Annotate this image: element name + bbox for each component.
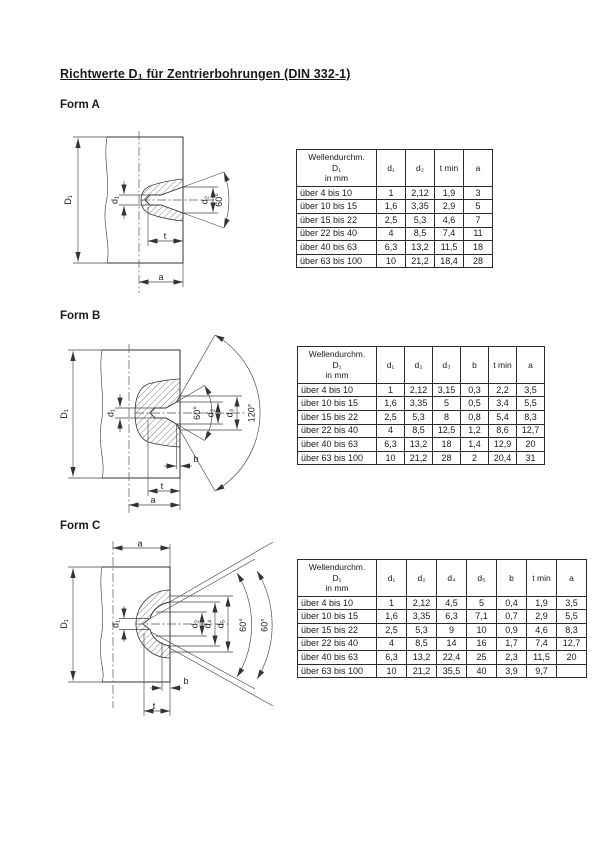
table-cell-value: 12,7 bbox=[517, 424, 545, 438]
table-cell-value: 16 bbox=[467, 637, 497, 651]
table-cell-value: 28 bbox=[464, 254, 493, 268]
table-cell-value: 40 bbox=[467, 664, 497, 678]
table-row: über 15 bis 222,55,39100,94,68,3 bbox=[298, 624, 587, 638]
dim-label-angle-60: 60° bbox=[214, 193, 224, 207]
table-header-row: Wellendurchm. D₁ in mmd₁d₂t mina bbox=[297, 150, 493, 187]
table-cell-value: 0,5 bbox=[461, 397, 489, 411]
table-cell-value: 6,3 bbox=[377, 438, 405, 452]
table-cell-range: über 10 bis 15 bbox=[297, 200, 377, 214]
table-cell-range: über 63 bis 100 bbox=[298, 664, 377, 678]
table-header-cell: d₁ bbox=[377, 150, 406, 187]
table-cell-value: 7,1 bbox=[467, 610, 497, 624]
table-header-cell: d₅ bbox=[467, 560, 497, 597]
table-row: über 10 bis 151,63,3550,53,45,5 bbox=[298, 397, 545, 411]
page-title: Richtwerte D₁ für Zentrierbohrungen (DIN… bbox=[60, 67, 350, 81]
table-header-shaft-diameter: Wellendurchm. D₁ in mm bbox=[298, 347, 377, 384]
dim-label-angle-60-inner: 60° bbox=[238, 618, 248, 632]
table-cell-value: 8 bbox=[433, 411, 461, 425]
table-header-cell: b bbox=[461, 347, 489, 384]
form-c-table-head: Wellendurchm. D₁ in mmd₁d₂d₄d₅bt mina bbox=[298, 560, 587, 597]
document-page: Richtwerte D₁ für Zentrierbohrungen (DIN… bbox=[0, 0, 600, 850]
form-b-table: Wellendurchm. D₁ in mmd₁d₂d₃bt mina über… bbox=[297, 346, 545, 465]
table-row: über 22 bis 4048,514161,77,412,7 bbox=[298, 637, 587, 651]
table-row: über 4 bis 1012,124,550,41,93,5 bbox=[298, 596, 587, 610]
table-cell-value: 1 bbox=[377, 186, 406, 200]
table-cell-value: 4,5 bbox=[437, 596, 467, 610]
table-row: über 22 bis 4048,512,51,28,612,7 bbox=[298, 424, 545, 438]
table-cell-value: 9 bbox=[437, 624, 467, 638]
dim-label-a: a bbox=[137, 539, 142, 549]
table-cell-value: 1,9 bbox=[527, 596, 557, 610]
table-cell-range: über 22 bis 40 bbox=[298, 637, 377, 651]
table-cell-value: 8,3 bbox=[557, 624, 587, 638]
table-cell-value: 1,4 bbox=[461, 438, 489, 452]
table-cell-range: über 15 bis 22 bbox=[298, 624, 377, 638]
table-cell-value: 2,5 bbox=[377, 624, 407, 638]
table-row: über 40 bis 636,313,211,518 bbox=[297, 241, 493, 255]
table-cell-value: 4 bbox=[377, 637, 407, 651]
shaft-break-line bbox=[100, 350, 103, 478]
table-cell-value: 12,9 bbox=[489, 438, 517, 452]
table-row: über 4 bis 1012,123,150,32,23,5 bbox=[298, 383, 545, 397]
table-cell-value: 2,2 bbox=[489, 383, 517, 397]
table-cell-value: 0,8 bbox=[461, 411, 489, 425]
table-row: über 22 bis 4048,57,411 bbox=[297, 227, 493, 241]
table-cell-value: 2,5 bbox=[377, 411, 405, 425]
table-cell-value: 0,7 bbox=[497, 610, 527, 624]
table-cell-value: 11,5 bbox=[435, 241, 464, 255]
table-cell-value: 20,4 bbox=[489, 451, 517, 465]
table-header-cell: d₂ bbox=[405, 347, 433, 384]
table-cell-value: 6,3 bbox=[437, 610, 467, 624]
form-c-table-body: über 4 bis 1012,124,550,41,93,5über 10 b… bbox=[298, 596, 587, 678]
table-header-shaft-diameter: Wellendurchm. D₁ in mm bbox=[298, 560, 377, 597]
form-b-heading: Form B bbox=[60, 310, 100, 322]
table-cell-value: 13,2 bbox=[407, 651, 437, 665]
dim-label-b: b bbox=[193, 454, 198, 464]
table-cell-value: 2,12 bbox=[405, 383, 433, 397]
table-cell-value: 2,12 bbox=[407, 596, 437, 610]
table-cell-value: 22,4 bbox=[437, 651, 467, 665]
table-cell-value: 2,5 bbox=[377, 214, 406, 228]
table-cell-value: 4 bbox=[377, 227, 406, 241]
form-b-drawing: D₁ d₁ 60° 120° d₂ d₃ b t a bbox=[55, 328, 305, 524]
table-row: über 63 bis 1001021,228220,431 bbox=[298, 451, 545, 465]
form-a-heading: Form A bbox=[60, 99, 100, 111]
table-cell-value: 5 bbox=[433, 397, 461, 411]
table-header-cell: d₂ bbox=[407, 560, 437, 597]
dim-label-angle-120: 120° bbox=[247, 403, 257, 422]
table-row: über 15 bis 222,55,380,85,48,3 bbox=[298, 411, 545, 425]
dim-label-b: b bbox=[183, 676, 188, 686]
table-header-cell: b bbox=[497, 560, 527, 597]
table-cell-value: 2,12 bbox=[406, 186, 435, 200]
table-row: über 40 bis 636,313,222,4252,311,520 bbox=[298, 651, 587, 665]
table-cell-range: über 4 bis 10 bbox=[298, 383, 377, 397]
dim-label-angle-60-outer: 60° bbox=[260, 618, 270, 632]
table-header-cell: a bbox=[464, 150, 493, 187]
table-header-cell: d₃ bbox=[433, 347, 461, 384]
shaft-break-line bbox=[100, 567, 103, 682]
dim-label-t: t bbox=[161, 481, 164, 491]
table-cell-value: 1 bbox=[377, 383, 405, 397]
table-cell-value: 18 bbox=[433, 438, 461, 452]
table-cell-value: 13,2 bbox=[406, 241, 435, 255]
table-cell-value: 20 bbox=[557, 651, 587, 665]
table-cell-value: 5,4 bbox=[489, 411, 517, 425]
table-cell-range: über 10 bis 15 bbox=[298, 610, 377, 624]
table-cell-value: 0,4 bbox=[497, 596, 527, 610]
table-header-cell: t min bbox=[527, 560, 557, 597]
form-a-table: Wellendurchm. D₁ in mmd₁d₂t mina über 4 … bbox=[296, 149, 493, 268]
table-cell-value bbox=[557, 664, 587, 678]
table-cell-value: 31 bbox=[517, 451, 545, 465]
table-cell-value: 2,3 bbox=[497, 651, 527, 665]
table-header-cell: d₁ bbox=[377, 347, 405, 384]
table-cell-value: 3,35 bbox=[406, 200, 435, 214]
table-header-cell: d₂ bbox=[406, 150, 435, 187]
table-header-cell: t min bbox=[435, 150, 464, 187]
table-header-row: Wellendurchm. D₁ in mmd₁d₂d₄d₅bt mina bbox=[298, 560, 587, 597]
table-row: über 4 bis 1012,121,93 bbox=[297, 186, 493, 200]
table-cell-value: 20 bbox=[517, 438, 545, 452]
table-cell-value: 21,2 bbox=[406, 254, 435, 268]
table-cell-range: über 63 bis 100 bbox=[298, 451, 377, 465]
table-row: über 10 bis 151,63,356,37,10,72,95,5 bbox=[298, 610, 587, 624]
table-cell-value: 21,2 bbox=[405, 451, 433, 465]
dim-label-d4: d₄ bbox=[203, 619, 213, 628]
table-cell-range: über 15 bis 22 bbox=[297, 214, 377, 228]
table-cell-value: 5,3 bbox=[405, 411, 433, 425]
table-cell-range: über 40 bis 63 bbox=[298, 438, 377, 452]
table-header-cell: t min bbox=[489, 347, 517, 384]
table-cell-value: 18,4 bbox=[435, 254, 464, 268]
dim-label-D1: D₁ bbox=[59, 619, 69, 629]
dim-label-a: a bbox=[150, 495, 155, 505]
table-cell-value: 11,5 bbox=[527, 651, 557, 665]
table-cell-value: 5,5 bbox=[557, 610, 587, 624]
table-cell-value: 6,3 bbox=[377, 651, 407, 665]
table-header-cell: d₄ bbox=[437, 560, 467, 597]
table-cell-value: 0,3 bbox=[461, 383, 489, 397]
table-cell-value: 7 bbox=[464, 214, 493, 228]
table-cell-value: 5 bbox=[467, 596, 497, 610]
table-cell-range: über 63 bis 100 bbox=[297, 254, 377, 268]
table-cell-value: 13,2 bbox=[405, 438, 433, 452]
table-cell-value: 4,6 bbox=[435, 214, 464, 228]
table-cell-value: 4 bbox=[377, 424, 405, 438]
table-header-cell: d₁ bbox=[377, 560, 407, 597]
table-cell-range: über 4 bis 10 bbox=[298, 596, 377, 610]
table-cell-value: 8,5 bbox=[407, 637, 437, 651]
table-cell-value: 3,9 bbox=[497, 664, 527, 678]
table-cell-value: 8,5 bbox=[405, 424, 433, 438]
dim-label-t: t bbox=[153, 701, 156, 711]
table-cell-range: über 10 bis 15 bbox=[298, 397, 377, 411]
dim-label-angle-60: 60° bbox=[192, 406, 202, 420]
dim-label-D1: D₁ bbox=[63, 195, 73, 205]
form-a-drawing: D₁ d₁ d₂ 60° t a bbox=[57, 127, 292, 307]
form-c-table: Wellendurchm. D₁ in mmd₁d₂d₄d₅bt mina üb… bbox=[297, 559, 587, 678]
table-cell-range: über 22 bis 40 bbox=[297, 227, 377, 241]
table-cell-value: 1,2 bbox=[461, 424, 489, 438]
table-row: über 63 bis 1001021,218,428 bbox=[297, 254, 493, 268]
table-cell-value: 21,2 bbox=[407, 664, 437, 678]
table-cell-value: 3,5 bbox=[557, 596, 587, 610]
table-cell-value: 5,5 bbox=[517, 397, 545, 411]
table-cell-value: 35,5 bbox=[437, 664, 467, 678]
form-a-table-head: Wellendurchm. D₁ in mmd₁d₂t mina bbox=[297, 150, 493, 187]
table-cell-value: 25 bbox=[467, 651, 497, 665]
table-cell-range: über 15 bis 22 bbox=[298, 411, 377, 425]
dim-label-d1: d₁ bbox=[111, 620, 121, 628]
table-cell-value: 1,6 bbox=[377, 610, 407, 624]
table-cell-value: 3,5 bbox=[517, 383, 545, 397]
form-b-table-head: Wellendurchm. D₁ in mmd₁d₂d₃bt mina bbox=[298, 347, 545, 384]
table-cell-value: 3 bbox=[464, 186, 493, 200]
table-cell-value: 14 bbox=[437, 637, 467, 651]
table-cell-value: 10 bbox=[377, 664, 407, 678]
dim-label-d3: d₃ bbox=[225, 408, 235, 417]
table-cell-value: 1,6 bbox=[377, 200, 406, 214]
table-cell-range: über 40 bis 63 bbox=[298, 651, 377, 665]
table-cell-value: 2 bbox=[461, 451, 489, 465]
table-header-cell: a bbox=[517, 347, 545, 384]
table-cell-value: 8,5 bbox=[406, 227, 435, 241]
dim-label-d2: d₂ bbox=[200, 195, 210, 204]
table-cell-value: 3,35 bbox=[407, 610, 437, 624]
table-cell-value: 10 bbox=[467, 624, 497, 638]
table-cell-value: 1,7 bbox=[497, 637, 527, 651]
dim-label-d2: d₂ bbox=[190, 619, 200, 628]
table-cell-value: 1,9 bbox=[435, 186, 464, 200]
table-header-row: Wellendurchm. D₁ in mmd₁d₂d₃bt mina bbox=[298, 347, 545, 384]
table-cell-value: 4,6 bbox=[527, 624, 557, 638]
dim-label-t: t bbox=[164, 231, 167, 241]
table-cell-value: 28 bbox=[433, 451, 461, 465]
table-cell-value: 3,15 bbox=[433, 383, 461, 397]
table-row: über 15 bis 222,55,34,67 bbox=[297, 214, 493, 228]
table-cell-value: 1 bbox=[377, 596, 407, 610]
table-cell-range: über 4 bis 10 bbox=[297, 186, 377, 200]
table-cell-value: 3,35 bbox=[405, 397, 433, 411]
table-cell-value: 0,9 bbox=[497, 624, 527, 638]
table-header-shaft-diameter: Wellendurchm. D₁ in mm bbox=[297, 150, 377, 187]
table-cell-value: 7,4 bbox=[435, 227, 464, 241]
dim-label-d1: d₁ bbox=[106, 409, 116, 417]
table-cell-value: 5 bbox=[464, 200, 493, 214]
table-row: über 10 bis 151,63,352,95 bbox=[297, 200, 493, 214]
table-row: über 40 bis 636,313,2181,412,920 bbox=[298, 438, 545, 452]
form-c-drawing: a D₁ d₁ d₂ d₄ d₅ 60° 60° b t bbox=[55, 538, 305, 724]
dim-label-a: a bbox=[158, 272, 163, 282]
table-cell-value: 11 bbox=[464, 227, 493, 241]
table-cell-value: 18 bbox=[464, 241, 493, 255]
table-cell-value: 1,6 bbox=[377, 397, 405, 411]
table-cell-value: 9,7 bbox=[527, 664, 557, 678]
table-cell-value: 12,7 bbox=[557, 637, 587, 651]
table-row: über 63 bis 1001021,235,5403,99,7 bbox=[298, 664, 587, 678]
table-cell-range: über 40 bis 63 bbox=[297, 241, 377, 255]
table-cell-value: 10 bbox=[377, 451, 405, 465]
table-cell-range: über 22 bis 40 bbox=[298, 424, 377, 438]
table-cell-value: 12,5 bbox=[433, 424, 461, 438]
table-cell-value: 8,3 bbox=[517, 411, 545, 425]
table-cell-value: 2,9 bbox=[435, 200, 464, 214]
table-cell-value: 5,3 bbox=[407, 624, 437, 638]
table-cell-value: 8,6 bbox=[489, 424, 517, 438]
table-cell-value: 5,3 bbox=[406, 214, 435, 228]
dim-label-d2: d₂ bbox=[206, 408, 216, 417]
table-header-cell: a bbox=[557, 560, 587, 597]
table-cell-value: 7,4 bbox=[527, 637, 557, 651]
table-cell-value: 2,9 bbox=[527, 610, 557, 624]
table-cell-value: 6,3 bbox=[377, 241, 406, 255]
dim-label-d5: d₅ bbox=[216, 619, 226, 628]
dim-label-d1: d₁ bbox=[110, 196, 120, 204]
dim-label-D1: D₁ bbox=[59, 409, 69, 419]
form-b-table-body: über 4 bis 1012,123,150,32,23,5über 10 b… bbox=[298, 383, 545, 465]
table-cell-value: 3,4 bbox=[489, 397, 517, 411]
form-a-table-body: über 4 bis 1012,121,93über 10 bis 151,63… bbox=[297, 186, 493, 268]
shaft-break-line bbox=[105, 137, 108, 263]
table-cell-value: 10 bbox=[377, 254, 406, 268]
